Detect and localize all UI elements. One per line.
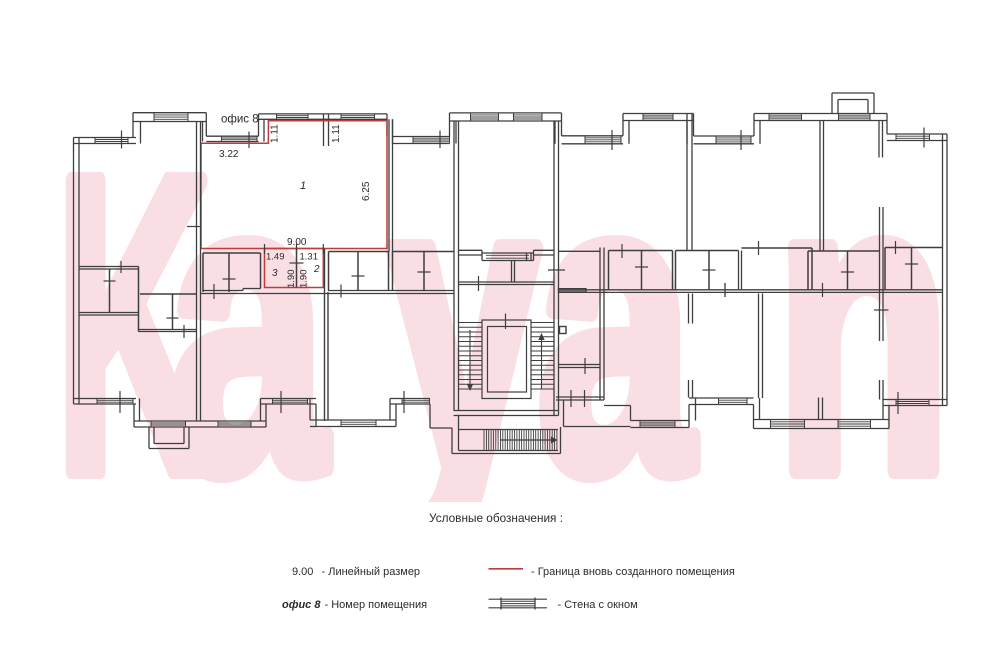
svg-text:1.90: 1.90 [286,270,297,289]
svg-text:9.00: 9.00 [292,566,313,578]
svg-text:3: 3 [272,268,278,279]
svg-text:1: 1 [300,180,306,192]
svg-text:a: a [168,91,328,561]
svg-text:- Линейный размер: - Линейный размер [322,566,421,578]
svg-text:3.22: 3.22 [219,149,239,160]
svg-text:n: n [775,91,951,560]
svg-text:1.49: 1.49 [266,252,285,263]
svg-text:2: 2 [313,264,320,275]
svg-text:1.11: 1.11 [331,124,342,143]
svg-text:офис 8: офис 8 [221,114,259,126]
svg-text:1.11: 1.11 [270,124,281,143]
svg-text:- Номер помещения: - Номер помещения [325,599,428,611]
svg-text:Условные обозначения :: Условные обозначения : [429,511,563,525]
svg-text:1.31: 1.31 [300,252,319,263]
svg-text:a: a [537,90,695,559]
svg-text:- Стена с окном: - Стена с окном [558,599,638,611]
svg-text:1.90: 1.90 [299,270,310,289]
svg-text:офис 8: офис 8 [282,599,321,611]
svg-text:- Граница вновь созданного пом: - Граница вновь созданного помещения [531,566,735,578]
svg-text:9.00: 9.00 [287,237,307,248]
svg-text:6.25: 6.25 [361,181,372,201]
